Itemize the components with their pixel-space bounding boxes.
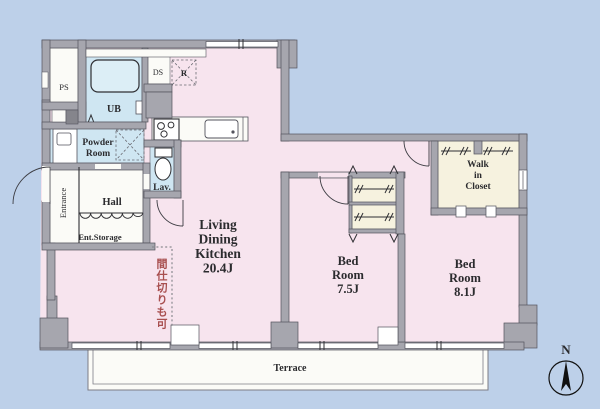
- bedroom-b-label-line1: Bed: [455, 257, 476, 271]
- ldk-label-line2: Dining: [198, 232, 237, 247]
- refrigerator-label: R: [181, 68, 188, 78]
- vanity-icon: [53, 129, 77, 167]
- wic-door-post: [486, 206, 496, 217]
- duct-space-label: DS: [153, 68, 163, 77]
- stove-icon: [154, 119, 179, 140]
- ldk-label-line1: Living: [199, 217, 237, 232]
- partition-note: 間仕切りも可: [155, 258, 166, 336]
- pipe-space-room: [50, 48, 78, 105]
- entrance-label: Entrance: [58, 188, 68, 218]
- wic-label-line1: Walk: [467, 160, 489, 170]
- lavatory-label: Lav.: [153, 183, 171, 193]
- compass: N: [549, 342, 583, 395]
- entrance-storage-label: Ent.Storage: [78, 232, 121, 242]
- powder-room-label-line2: Room: [86, 149, 110, 159]
- floor-plan-drawing: Living Dining Kitchen 20.4J Bed Room 7.5…: [0, 0, 600, 409]
- compass-needle-icon: [561, 361, 571, 391]
- toilet-icon: [155, 148, 172, 180]
- wic-label-line2: in: [474, 171, 483, 181]
- compass-north-label: N: [561, 342, 571, 357]
- unit-bath-label: UB: [107, 104, 121, 115]
- bedroom-a-label-line1: Bed: [338, 254, 359, 268]
- bedroom-a-size-label: 7.5J: [337, 282, 359, 296]
- bedroom-b-size-label: 8.1J: [454, 285, 476, 299]
- wic-door-post: [456, 206, 466, 217]
- window-post: [171, 325, 199, 345]
- shaft-box: [66, 110, 78, 124]
- kitchen-sink-icon: [205, 120, 238, 138]
- powder-room-label-line1: Powder: [82, 138, 114, 148]
- wic-label-line3: Closet: [465, 182, 491, 192]
- terrace-label: Terrace: [274, 363, 308, 374]
- floor-plan-image: Living Dining Kitchen 20.4J Bed Room 7.5…: [0, 0, 600, 409]
- ldk-label-line3: Kitchen: [195, 246, 241, 261]
- kitchen-counter: [152, 117, 248, 141]
- entrance-door: [13, 166, 50, 204]
- window-post: [378, 327, 398, 345]
- pipe-space-label: PS: [59, 82, 69, 92]
- bedroom-b-label-line2: Room: [449, 271, 482, 285]
- bedroom-a-label-line2: Room: [332, 268, 365, 282]
- hall-label: Hall: [102, 197, 121, 208]
- ldk-size-label: 20.4J: [203, 261, 234, 276]
